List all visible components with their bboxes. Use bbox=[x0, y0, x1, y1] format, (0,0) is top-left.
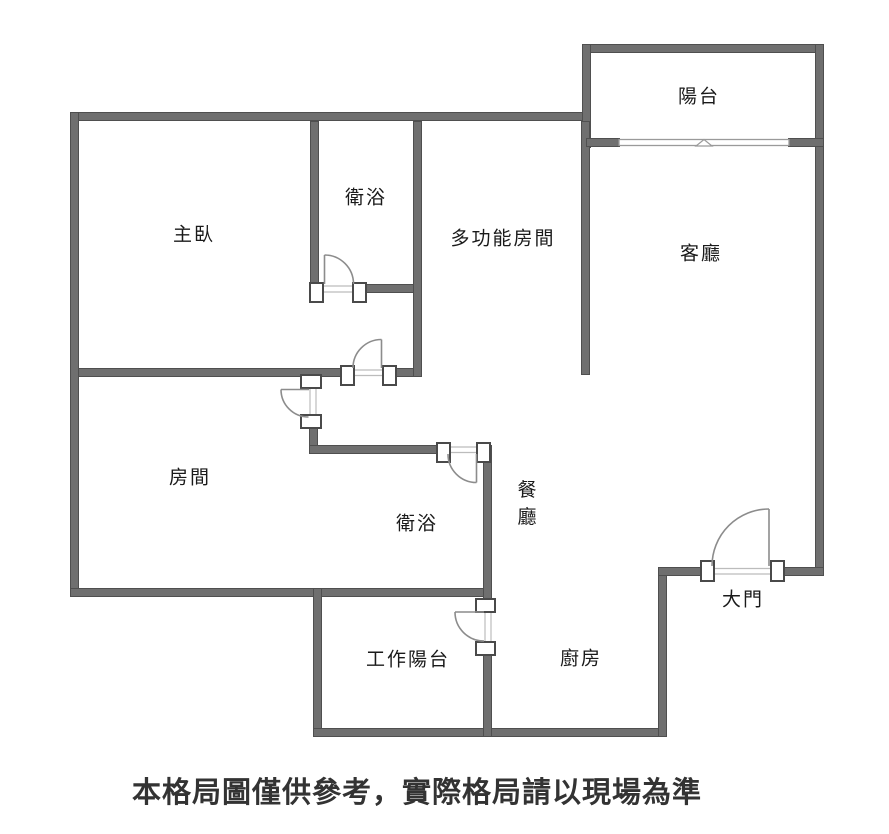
door-bathroom-2 bbox=[437, 443, 490, 483]
sliding-window bbox=[619, 140, 789, 147]
room-label-multifunction-room: 多功能房間 bbox=[450, 228, 555, 251]
door-bathroom-1 bbox=[310, 255, 366, 302]
room-label-balcony: 陽台 bbox=[678, 86, 720, 109]
floor-plan: 陽台 主臥 衛浴 多功能房間 客廳 房間 衛浴 餐廳 大門 工作陽台 廚房 本格… bbox=[0, 0, 889, 834]
room-label-kitchen: 廚房 bbox=[560, 648, 602, 671]
doors-windows-overlay bbox=[0, 0, 889, 834]
room-label-utility-balcony: 工作陽台 bbox=[366, 649, 450, 672]
door-bedroom bbox=[281, 375, 321, 428]
door-main-entrance bbox=[701, 509, 784, 581]
room-label-main-door: 大門 bbox=[722, 589, 764, 612]
door-master-bedroom bbox=[341, 340, 396, 386]
room-label-living-room: 客廳 bbox=[680, 243, 722, 266]
disclaimer-caption: 本格局圖僅供參考，實際格局請以現場為準 bbox=[132, 769, 702, 811]
room-label-bathroom-1: 衛浴 bbox=[345, 187, 387, 210]
room-label-dining-room: 餐廳 bbox=[515, 477, 539, 531]
room-label-master-bedroom: 主臥 bbox=[173, 224, 215, 247]
room-label-bedroom: 房間 bbox=[169, 467, 211, 490]
door-utility-balcony bbox=[455, 599, 495, 655]
room-label-bathroom-2: 衛浴 bbox=[396, 513, 438, 536]
